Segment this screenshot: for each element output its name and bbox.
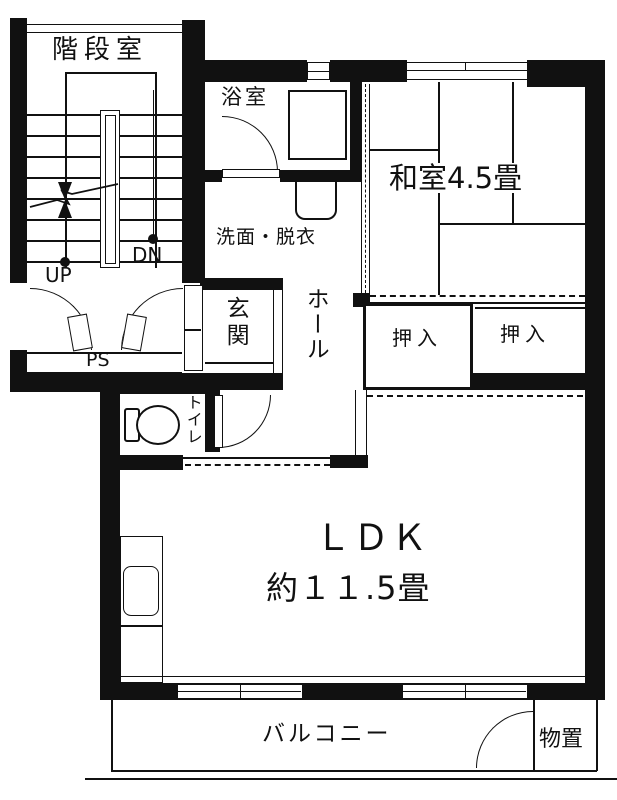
wall-segment (585, 87, 605, 695)
washbasin-icon (295, 182, 337, 220)
tatami-line (512, 82, 514, 223)
bathroom-door-leaf (222, 169, 280, 178)
balcony-bottom-line (111, 770, 597, 772)
floor-plan: 階段室 UP DN PS 浴室 洗面・脱衣 玄関 ホール 和室4.5畳 押入 押… (0, 0, 617, 800)
stairwell-label: 階段室 (52, 37, 148, 64)
wall-segment (280, 170, 350, 182)
closet-right-top-line (475, 307, 585, 309)
wall-segment (205, 373, 283, 390)
wall-segment (330, 455, 368, 468)
bathtub-icon (288, 90, 347, 160)
kitchen-counter-divider (120, 625, 163, 627)
wall-segment (527, 60, 605, 87)
tatami-line (438, 223, 585, 225)
pipe-space-label: PS (86, 351, 110, 371)
stair-break-line (22, 175, 127, 225)
closet-left-label: 押入 (392, 328, 442, 349)
storage-door-arc (476, 711, 533, 768)
ground-line (85, 778, 617, 780)
hall-door-arc (218, 395, 271, 448)
entrance-hall-partition (273, 290, 283, 373)
stair-down-label: DN (132, 245, 162, 266)
storage-right-line (596, 692, 598, 771)
hall-ldk-opening-line (183, 457, 330, 459)
kitchen-sink-icon (123, 566, 159, 616)
closet-ldk-dashed-line (367, 395, 583, 397)
entrance-label: 玄関 (223, 296, 247, 350)
ldk-label: ＬＤＫ (315, 520, 429, 558)
hall-door-leaf (214, 395, 223, 448)
ldk-south-wall-line (120, 676, 585, 677)
sliding-door-line (361, 84, 370, 293)
balcony-label: バルコニー (262, 722, 392, 746)
closet-right-label: 押入 (500, 324, 550, 345)
japanese-room-label: 和室4.5畳 (387, 163, 524, 193)
stair-landing-line (65, 72, 155, 74)
hall-label: ホール (303, 287, 327, 362)
ldk-window-left (177, 684, 303, 699)
japanese-room-window (407, 62, 527, 80)
wall-segment (27, 372, 182, 392)
wall-segment (182, 373, 205, 392)
stair-down-line (153, 90, 155, 239)
wall-segment (100, 390, 120, 700)
entrance-step-line (205, 362, 273, 364)
wall-segment (10, 18, 27, 283)
bathroom-window (307, 62, 330, 80)
wall-segment (100, 683, 605, 700)
bathroom-label: 浴室 (221, 86, 269, 108)
ldk-window-right (402, 684, 528, 699)
entrance-door-gap (184, 285, 203, 371)
hall-ldk-dashed-line (185, 464, 330, 466)
tatami-line (370, 149, 438, 151)
bathroom-door-arc (222, 116, 278, 172)
stairwell-window (27, 24, 182, 33)
storage-label: 物置 (539, 728, 583, 751)
storage-divider-line (533, 700, 535, 770)
stair-up-label: UP (45, 265, 72, 286)
wall-segment (473, 373, 585, 390)
wall-segment (182, 20, 205, 283)
washroom-label: 洗面・脱衣 (216, 228, 316, 248)
balcony-left-line (111, 700, 113, 771)
fusuma-dashed-line (370, 295, 585, 297)
wall-segment (10, 350, 27, 392)
toilet-label: トイレ (184, 394, 201, 445)
toilet-bowl-icon (136, 405, 180, 445)
wall-segment (330, 60, 407, 82)
wall-segment (205, 170, 222, 182)
wall-segment (200, 278, 283, 290)
hall-closet-partition (355, 390, 367, 455)
ldk-size-label: 約１１.5畳 (266, 572, 431, 606)
wall-segment (203, 60, 307, 82)
